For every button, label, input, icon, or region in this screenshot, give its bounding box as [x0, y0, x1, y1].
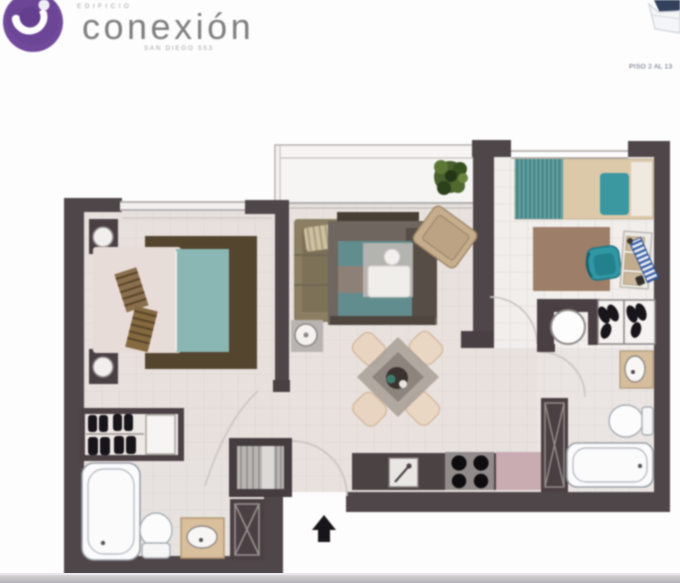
svg-text:PISO 2 AL 13: PISO 2 AL 13 — [629, 64, 672, 71]
svg-text:SAN DIEGO 553: SAN DIEGO 553 — [144, 45, 214, 52]
svg-text:conexión: conexión — [82, 6, 254, 47]
